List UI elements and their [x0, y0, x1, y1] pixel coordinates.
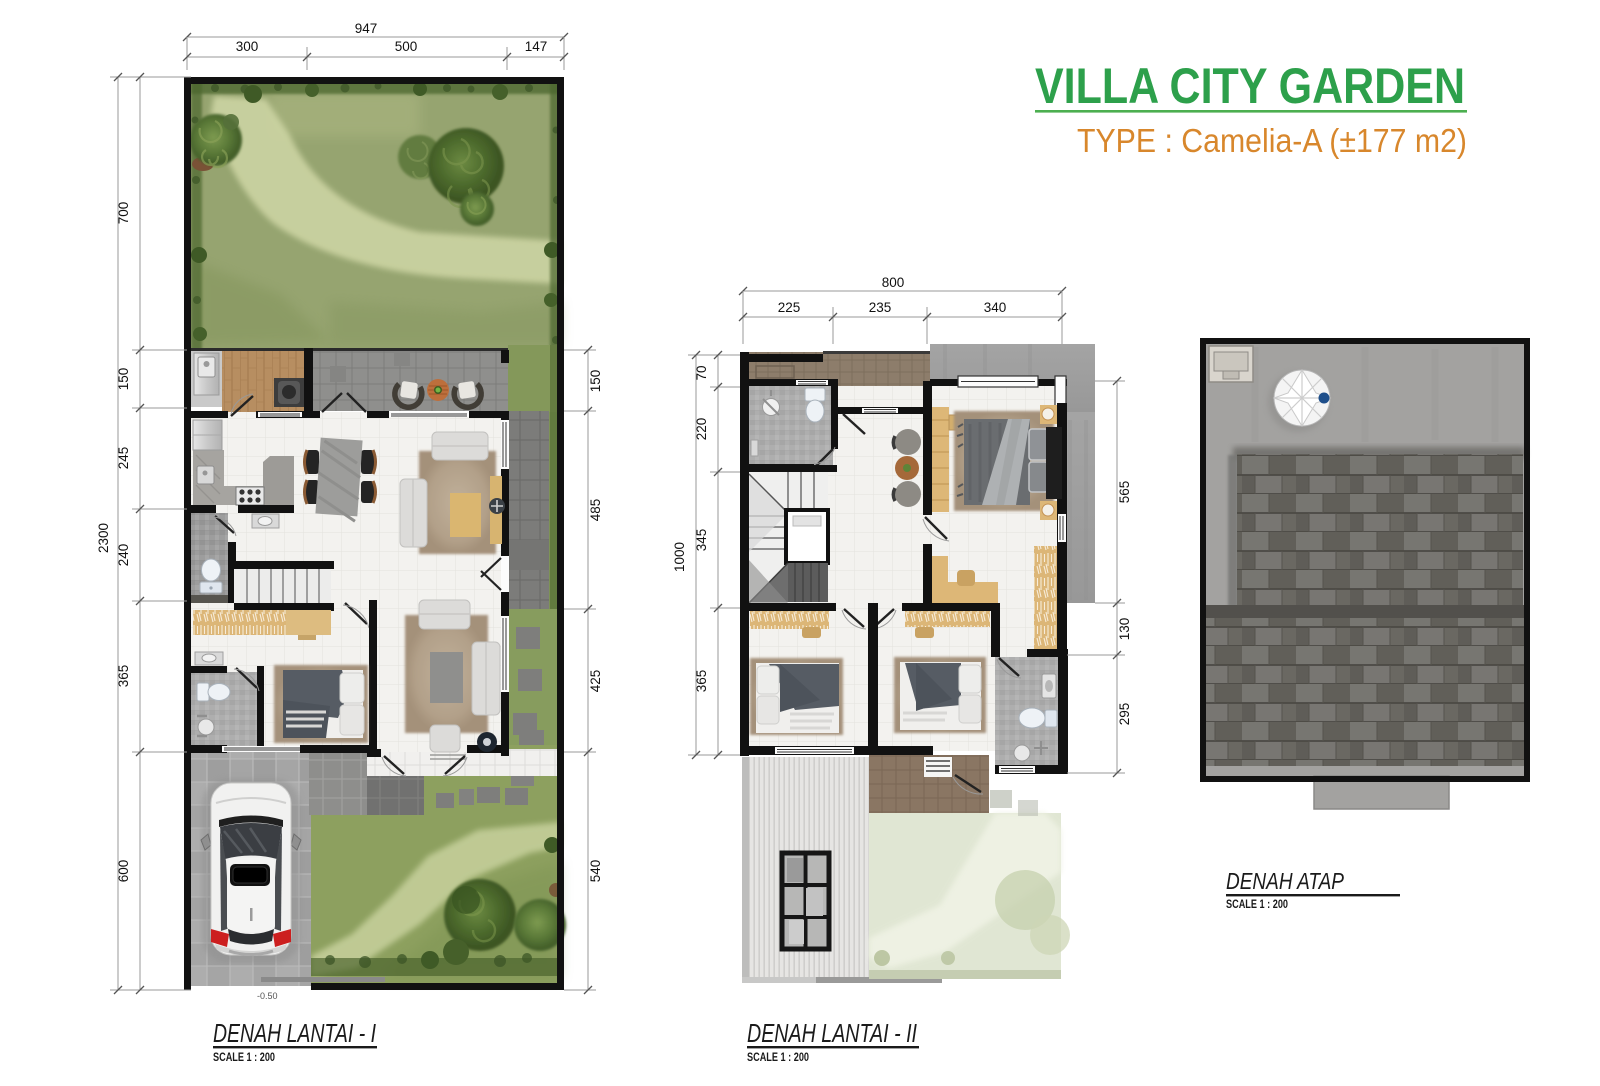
svg-text:SCALE 1 : 200: SCALE 1 : 200 — [1226, 899, 1288, 911]
svg-text:345: 345 — [694, 529, 709, 552]
svg-text:DENAH ATAP: DENAH ATAP — [1226, 868, 1345, 894]
svg-text:TYPE : Camelia-A (±177 m2): TYPE : Camelia-A (±177 m2) — [1077, 122, 1467, 159]
svg-text:540: 540 — [588, 860, 603, 883]
svg-text:225: 225 — [778, 300, 801, 315]
svg-text:365: 365 — [694, 670, 709, 693]
svg-text:295: 295 — [1117, 703, 1132, 726]
svg-text:425: 425 — [588, 670, 603, 693]
svg-text:2300: 2300 — [96, 523, 111, 553]
svg-text:600: 600 — [116, 860, 131, 883]
svg-text:235: 235 — [869, 300, 892, 315]
svg-text:340: 340 — [984, 300, 1007, 315]
svg-text:DENAH LANTAI - II: DENAH LANTAI - II — [747, 1018, 917, 1048]
svg-text:1000: 1000 — [672, 542, 687, 572]
svg-text:130: 130 — [1117, 618, 1132, 641]
svg-text:150: 150 — [588, 370, 603, 393]
svg-text:SCALE 1 : 200: SCALE 1 : 200 — [747, 1052, 809, 1064]
svg-text:240: 240 — [116, 544, 131, 567]
svg-text:147: 147 — [525, 39, 548, 54]
svg-text:947: 947 — [355, 21, 378, 36]
svg-text:SCALE 1 : 200: SCALE 1 : 200 — [213, 1052, 275, 1064]
svg-text:300: 300 — [236, 39, 259, 54]
svg-text:245: 245 — [116, 447, 131, 470]
svg-text:800: 800 — [882, 275, 905, 290]
svg-text:565: 565 — [1117, 481, 1132, 504]
svg-text:700: 700 — [116, 202, 131, 225]
svg-text:485: 485 — [588, 499, 603, 522]
svg-text:-0.50: -0.50 — [257, 991, 278, 1001]
svg-text:VILLA CITY GARDEN: VILLA CITY GARDEN — [1035, 58, 1465, 114]
svg-text:220: 220 — [694, 418, 709, 441]
svg-text:500: 500 — [395, 39, 418, 54]
svg-text:70: 70 — [694, 365, 709, 380]
svg-text:150: 150 — [116, 368, 131, 391]
svg-text:DENAH LANTAI - I: DENAH LANTAI - I — [213, 1018, 376, 1048]
svg-text:365: 365 — [116, 665, 131, 688]
